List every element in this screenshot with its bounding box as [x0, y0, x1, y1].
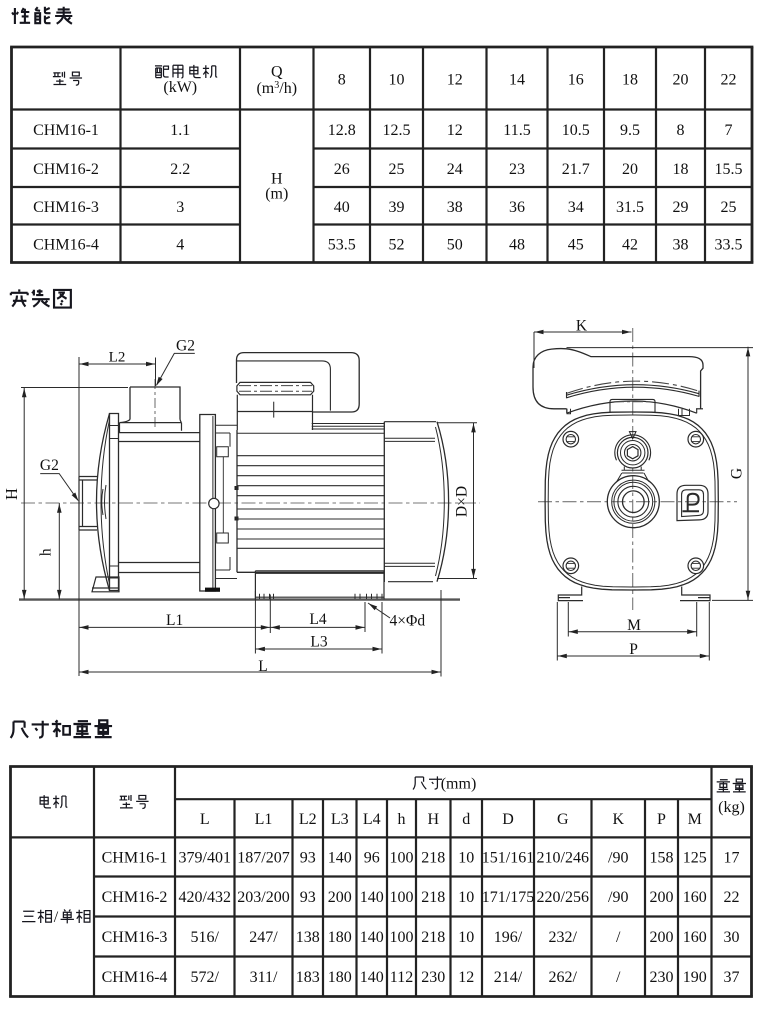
- svg-text:20: 20: [673, 71, 689, 88]
- svg-text:158: 158: [650, 849, 674, 866]
- svg-text:14: 14: [509, 71, 525, 88]
- svg-text:L2: L2: [299, 811, 317, 828]
- svg-text:22: 22: [721, 71, 737, 88]
- svg-text:CHM16-4: CHM16-4: [102, 969, 168, 986]
- svg-text:26: 26: [334, 161, 350, 178]
- svg-text:33.5: 33.5: [715, 237, 743, 254]
- svg-text:10: 10: [458, 849, 474, 866]
- svg-text:K: K: [612, 811, 624, 828]
- svg-text:140: 140: [328, 849, 352, 866]
- svg-text:17: 17: [724, 849, 740, 866]
- svg-text:12: 12: [458, 969, 474, 986]
- svg-text:G2: G2: [176, 338, 195, 355]
- svg-text:180: 180: [328, 969, 352, 986]
- svg-text:G2: G2: [40, 457, 59, 474]
- svg-text:140: 140: [360, 889, 384, 906]
- svg-text:M: M: [627, 617, 641, 634]
- svg-text:L4: L4: [309, 611, 326, 628]
- svg-text:50: 50: [447, 237, 463, 254]
- svg-text:D×D: D×D: [454, 486, 471, 517]
- svg-text:53.5: 53.5: [328, 237, 356, 254]
- svg-text:11.5: 11.5: [503, 122, 530, 139]
- svg-text:3: 3: [176, 199, 184, 216]
- svg-text:516/: 516/: [191, 929, 220, 946]
- svg-text:CHM16-2: CHM16-2: [33, 161, 99, 178]
- svg-text:200: 200: [650, 929, 674, 946]
- svg-text:218: 218: [421, 889, 445, 906]
- svg-text:203/200: 203/200: [237, 889, 289, 906]
- svg-text:230: 230: [421, 969, 445, 986]
- svg-text:38: 38: [447, 199, 463, 216]
- svg-text:(m): (m): [265, 186, 288, 203]
- svg-text:10: 10: [458, 889, 474, 906]
- svg-text:(m3/h): (m3/h): [256, 80, 297, 97]
- svg-text:18: 18: [673, 161, 689, 178]
- svg-text:25: 25: [721, 199, 737, 216]
- svg-text:200: 200: [650, 889, 674, 906]
- svg-text:160: 160: [683, 889, 707, 906]
- svg-text:36: 36: [509, 199, 525, 216]
- svg-text:/90: /90: [608, 889, 628, 906]
- svg-text:K: K: [576, 317, 588, 334]
- svg-text:93: 93: [300, 889, 316, 906]
- svg-text:10: 10: [389, 71, 405, 88]
- svg-text:CHM16-3: CHM16-3: [33, 199, 99, 216]
- svg-text:21.7: 21.7: [562, 161, 590, 178]
- svg-text:45: 45: [568, 237, 584, 254]
- svg-text:8: 8: [338, 71, 346, 88]
- svg-text:h: h: [398, 811, 406, 828]
- svg-text:12: 12: [447, 71, 463, 88]
- svg-text:CHM16-1: CHM16-1: [102, 849, 168, 866]
- svg-text:218: 218: [421, 929, 445, 946]
- svg-text:16: 16: [568, 71, 584, 88]
- svg-text:23: 23: [509, 161, 525, 178]
- svg-text:29: 29: [673, 199, 689, 216]
- svg-text:183: 183: [296, 969, 320, 986]
- svg-text:196/: 196/: [494, 929, 523, 946]
- svg-text:96: 96: [364, 849, 380, 866]
- svg-text:180: 180: [328, 929, 352, 946]
- svg-text:25: 25: [389, 161, 405, 178]
- svg-text:P: P: [629, 641, 638, 658]
- svg-text:D: D: [502, 811, 514, 828]
- svg-text:572/: 572/: [191, 969, 220, 986]
- svg-text:4: 4: [176, 237, 184, 254]
- svg-text:230: 230: [650, 969, 674, 986]
- svg-text:L1: L1: [166, 612, 183, 629]
- svg-text:24: 24: [447, 161, 463, 178]
- svg-text:214/: 214/: [494, 969, 523, 986]
- svg-text:100: 100: [390, 849, 414, 866]
- svg-text:L3: L3: [310, 634, 327, 651]
- svg-text:L2: L2: [109, 350, 126, 366]
- svg-text:L4: L4: [363, 811, 381, 828]
- svg-text:CHM16-1: CHM16-1: [33, 122, 99, 139]
- svg-text:100: 100: [390, 929, 414, 946]
- svg-text:10: 10: [458, 929, 474, 946]
- svg-text:247/: 247/: [249, 929, 278, 946]
- svg-text:218: 218: [421, 849, 445, 866]
- svg-text:52: 52: [389, 237, 405, 254]
- svg-text:311/: 311/: [250, 969, 278, 986]
- svg-text:L: L: [258, 658, 267, 675]
- svg-text:42: 42: [622, 237, 638, 254]
- svg-text:220/256: 220/256: [537, 889, 589, 906]
- svg-text:187/207: 187/207: [237, 849, 289, 866]
- svg-text:12.5: 12.5: [383, 122, 411, 139]
- svg-text:37: 37: [724, 969, 740, 986]
- svg-text:125: 125: [683, 849, 707, 866]
- svg-text:100: 100: [390, 889, 414, 906]
- svg-text:39: 39: [389, 199, 405, 216]
- svg-text:12.8: 12.8: [328, 122, 356, 139]
- svg-text:G: G: [557, 811, 569, 828]
- svg-text:38: 38: [673, 237, 689, 254]
- svg-text:G: G: [729, 468, 746, 479]
- svg-text:/: /: [616, 969, 621, 986]
- svg-text:140: 140: [360, 929, 384, 946]
- svg-text:(kg): (kg): [718, 799, 745, 816]
- svg-text:(kW): (kW): [163, 79, 197, 96]
- svg-text:31.5: 31.5: [616, 199, 644, 216]
- svg-text:d: d: [462, 811, 470, 828]
- svg-text:4×Φd: 4×Φd: [390, 613, 426, 630]
- svg-text:12: 12: [447, 122, 463, 139]
- svg-text:(mm): (mm): [441, 776, 477, 793]
- svg-text:140: 140: [360, 969, 384, 986]
- svg-text:151/161: 151/161: [482, 849, 534, 866]
- svg-text:34: 34: [568, 199, 584, 216]
- svg-text:L3: L3: [331, 811, 349, 828]
- svg-text:/: /: [616, 929, 621, 946]
- svg-text:48: 48: [509, 237, 525, 254]
- svg-text:8: 8: [677, 122, 685, 139]
- svg-text:10.5: 10.5: [562, 122, 590, 139]
- svg-text:262/: 262/: [549, 969, 578, 986]
- svg-text:171/175: 171/175: [482, 889, 534, 906]
- svg-text:7: 7: [725, 122, 733, 139]
- svg-text:H: H: [427, 811, 439, 828]
- svg-text:Q: Q: [271, 64, 283, 81]
- svg-text:112: 112: [390, 969, 413, 986]
- svg-text:18: 18: [622, 71, 638, 88]
- svg-text:30: 30: [724, 929, 740, 946]
- svg-text:22: 22: [724, 889, 740, 906]
- svg-text:/: /: [54, 909, 59, 926]
- svg-text:h: h: [38, 548, 55, 556]
- svg-text:H: H: [2, 488, 21, 500]
- svg-text:/90: /90: [608, 849, 628, 866]
- svg-text:9.5: 9.5: [620, 122, 640, 139]
- svg-text:20: 20: [622, 161, 638, 178]
- svg-text:1.1: 1.1: [170, 122, 190, 139]
- svg-text:420/432: 420/432: [179, 889, 231, 906]
- svg-text:CHM16-4: CHM16-4: [33, 237, 99, 254]
- svg-text:15.5: 15.5: [715, 161, 743, 178]
- svg-text:379/401: 379/401: [179, 849, 231, 866]
- svg-text:210/246: 210/246: [537, 849, 589, 866]
- svg-text:93: 93: [300, 849, 316, 866]
- svg-text:CHM16-2: CHM16-2: [102, 889, 168, 906]
- svg-text:232/: 232/: [549, 929, 578, 946]
- svg-text:CHM16-3: CHM16-3: [102, 929, 168, 946]
- svg-text:L: L: [200, 811, 210, 828]
- svg-text:P: P: [657, 811, 666, 828]
- svg-text:160: 160: [683, 929, 707, 946]
- svg-text:40: 40: [334, 199, 350, 216]
- svg-text:200: 200: [328, 889, 352, 906]
- svg-text:190: 190: [683, 969, 707, 986]
- svg-text:L1: L1: [255, 811, 273, 828]
- svg-text:M: M: [688, 811, 702, 828]
- svg-text:2.2: 2.2: [170, 161, 190, 178]
- svg-text:138: 138: [296, 929, 320, 946]
